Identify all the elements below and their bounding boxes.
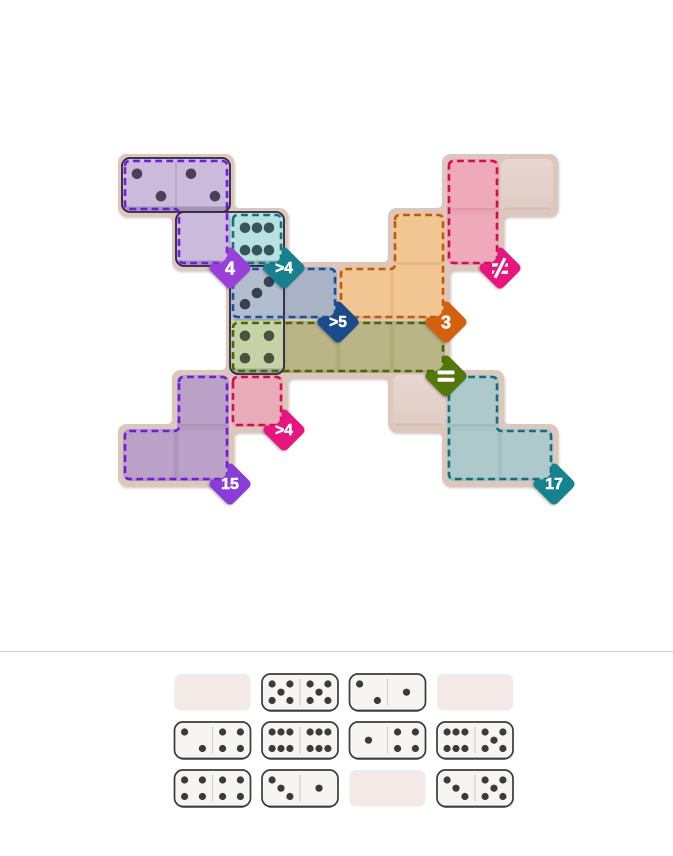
svg-text:17: 17 <box>545 476 563 493</box>
svg-text:15: 15 <box>221 476 239 493</box>
svg-text:>5: >5 <box>329 314 347 331</box>
svg-text:4: 4 <box>225 259 235 279</box>
svg-text:3: 3 <box>441 313 451 333</box>
svg-text:>4: >4 <box>275 422 293 439</box>
svg-text:>4: >4 <box>275 260 293 277</box>
